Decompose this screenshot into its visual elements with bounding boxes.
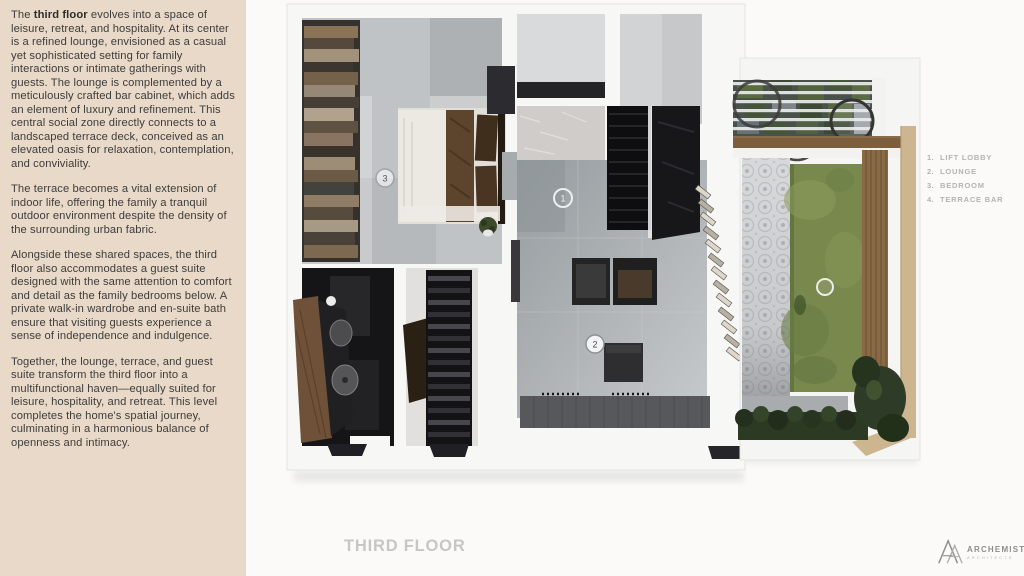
paragraph-1: The third floor evolves into a space of …	[11, 9, 237, 171]
sofa	[572, 258, 657, 305]
text-panel: The third floor evolves into a space of …	[0, 0, 246, 576]
hedge	[735, 406, 868, 440]
marker-2: 2	[586, 335, 604, 353]
logo-subtitle: ARCHITECTS	[967, 555, 1024, 560]
guest-wardrobe	[403, 268, 478, 446]
marker-3: 3	[376, 169, 394, 187]
tile-walkway	[742, 158, 790, 398]
logo-text: ARCHEMIST ARCHITECTS	[967, 545, 1024, 560]
legend-label: LOUNGE	[940, 167, 977, 176]
legend-num: 2.	[927, 167, 940, 176]
marker-4	[817, 279, 833, 295]
legend-label: TERRACE BAR	[940, 195, 1003, 204]
terrace	[733, 58, 920, 460]
svg-text:3: 3	[382, 174, 387, 184]
plan-legend: 1. LIFT LOBBY 2. LOUNGE 3. BEDROOM 4. TE…	[927, 153, 1003, 209]
legend-label: LIFT LOBBY	[940, 153, 992, 162]
legend-label: BEDROOM	[940, 181, 985, 190]
legend-item-bedroom: 3. BEDROOM	[927, 181, 1003, 190]
wardrobe-closet	[302, 20, 360, 262]
legend-num: 1.	[927, 153, 940, 162]
bed	[398, 108, 506, 224]
svg-text:1: 1	[560, 194, 565, 204]
staircase	[607, 106, 700, 240]
bedroom-cabinet	[487, 66, 515, 114]
paragraph-4: Together, the lounge, terrace, and guest…	[11, 356, 237, 451]
bar-cabinet	[520, 394, 710, 428]
wood-deck	[862, 150, 888, 372]
bathroom	[293, 268, 394, 447]
legend-item-lounge: 2. LOUNGE	[927, 167, 1003, 176]
floor-title: THIRD FLOOR	[344, 537, 466, 556]
legend-num: 3.	[927, 181, 940, 190]
wood-frame-top	[733, 136, 905, 148]
lift-lobby	[517, 106, 605, 160]
legend-item-lift-lobby: 1. LIFT LOBBY	[927, 153, 1003, 162]
paragraph-2: The terrace becomes a vital extension of…	[11, 183, 237, 237]
legend-num: 4.	[927, 195, 940, 204]
building-shadow	[294, 470, 744, 482]
round-planter-icon	[831, 100, 873, 142]
archemist-logo: ARCHEMIST ARCHITECTS	[936, 537, 1024, 567]
paragraph-1-bold: third floor	[34, 9, 88, 21]
paragraph-1-lead: The	[11, 9, 34, 21]
ottoman	[604, 343, 643, 382]
paragraph-1-body: evolves into a space of leisure, retreat…	[11, 9, 235, 170]
legend-item-terrace-bar: 4. TERRACE BAR	[927, 195, 1003, 204]
svg-text:2: 2	[592, 340, 597, 350]
door	[511, 240, 520, 302]
logo-mark-icon	[936, 537, 964, 567]
lawn	[781, 164, 868, 392]
logo-name: ARCHEMIST	[967, 545, 1024, 554]
paragraph-3: Alongside these shared spaces, the third…	[11, 249, 237, 344]
